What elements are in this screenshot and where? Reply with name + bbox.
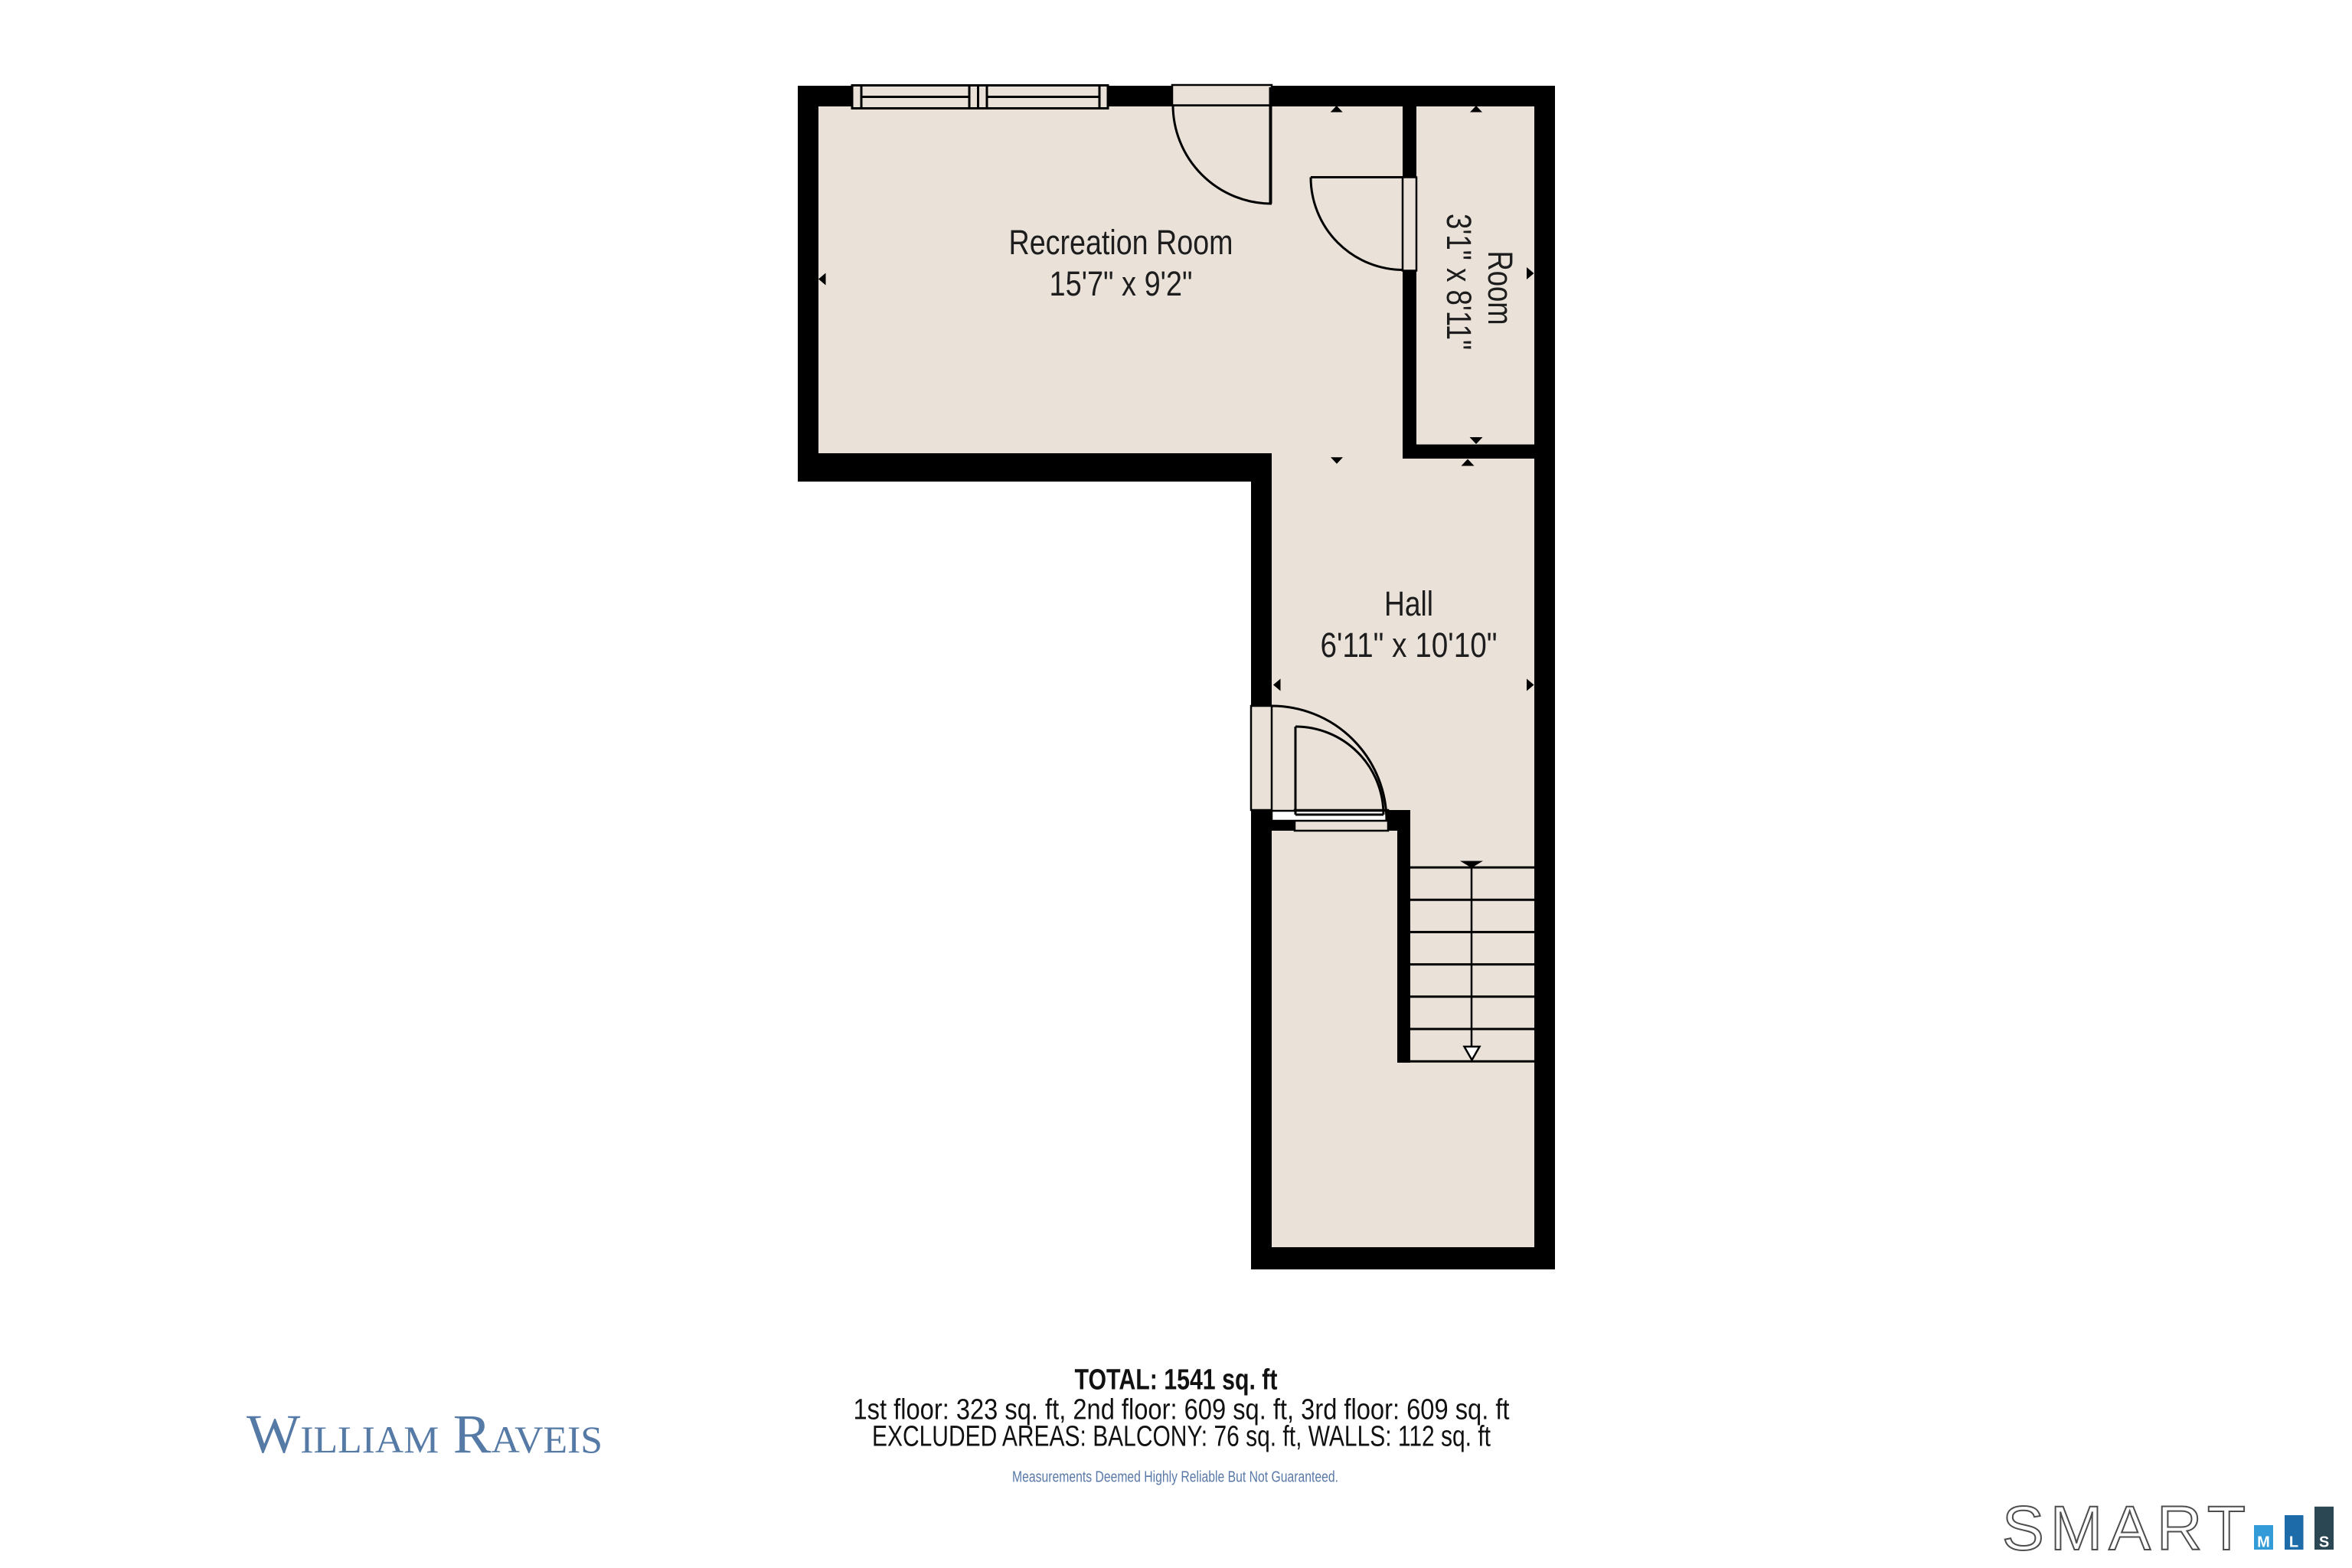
svg-text:6'11" x 10'10": 6'11" x 10'10": [1321, 626, 1498, 665]
svg-text:TOTAL: 1541 sq. ft: TOTAL: 1541 sq. ft: [1075, 1364, 1278, 1396]
svg-text:SMART: SMART: [2002, 1494, 2246, 1563]
svg-text:EXCLUDED AREAS: BALCONY: 76 sq: EXCLUDED AREAS: BALCONY: 76 sq. ft, WALL…: [872, 1421, 1491, 1453]
svg-text:S: S: [2319, 1534, 2329, 1551]
svg-text:15'7" x 9'2": 15'7" x 9'2": [1050, 264, 1193, 303]
svg-text:Hall: Hall: [1384, 584, 1433, 623]
svg-text:M: M: [2257, 1534, 2270, 1551]
svg-text:Recreation Room: Recreation Room: [1009, 223, 1233, 262]
svg-text:Room: Room: [1481, 251, 1520, 325]
svg-text:L: L: [2289, 1534, 2298, 1551]
svg-text:William Raveis: William Raveis: [247, 1403, 603, 1465]
svg-text:3'1" x 8'11": 3'1" x 8'11": [1439, 214, 1478, 350]
svg-text:Measurements Deemed Highly Rel: Measurements Deemed Highly Reliable But …: [1012, 1469, 1338, 1486]
